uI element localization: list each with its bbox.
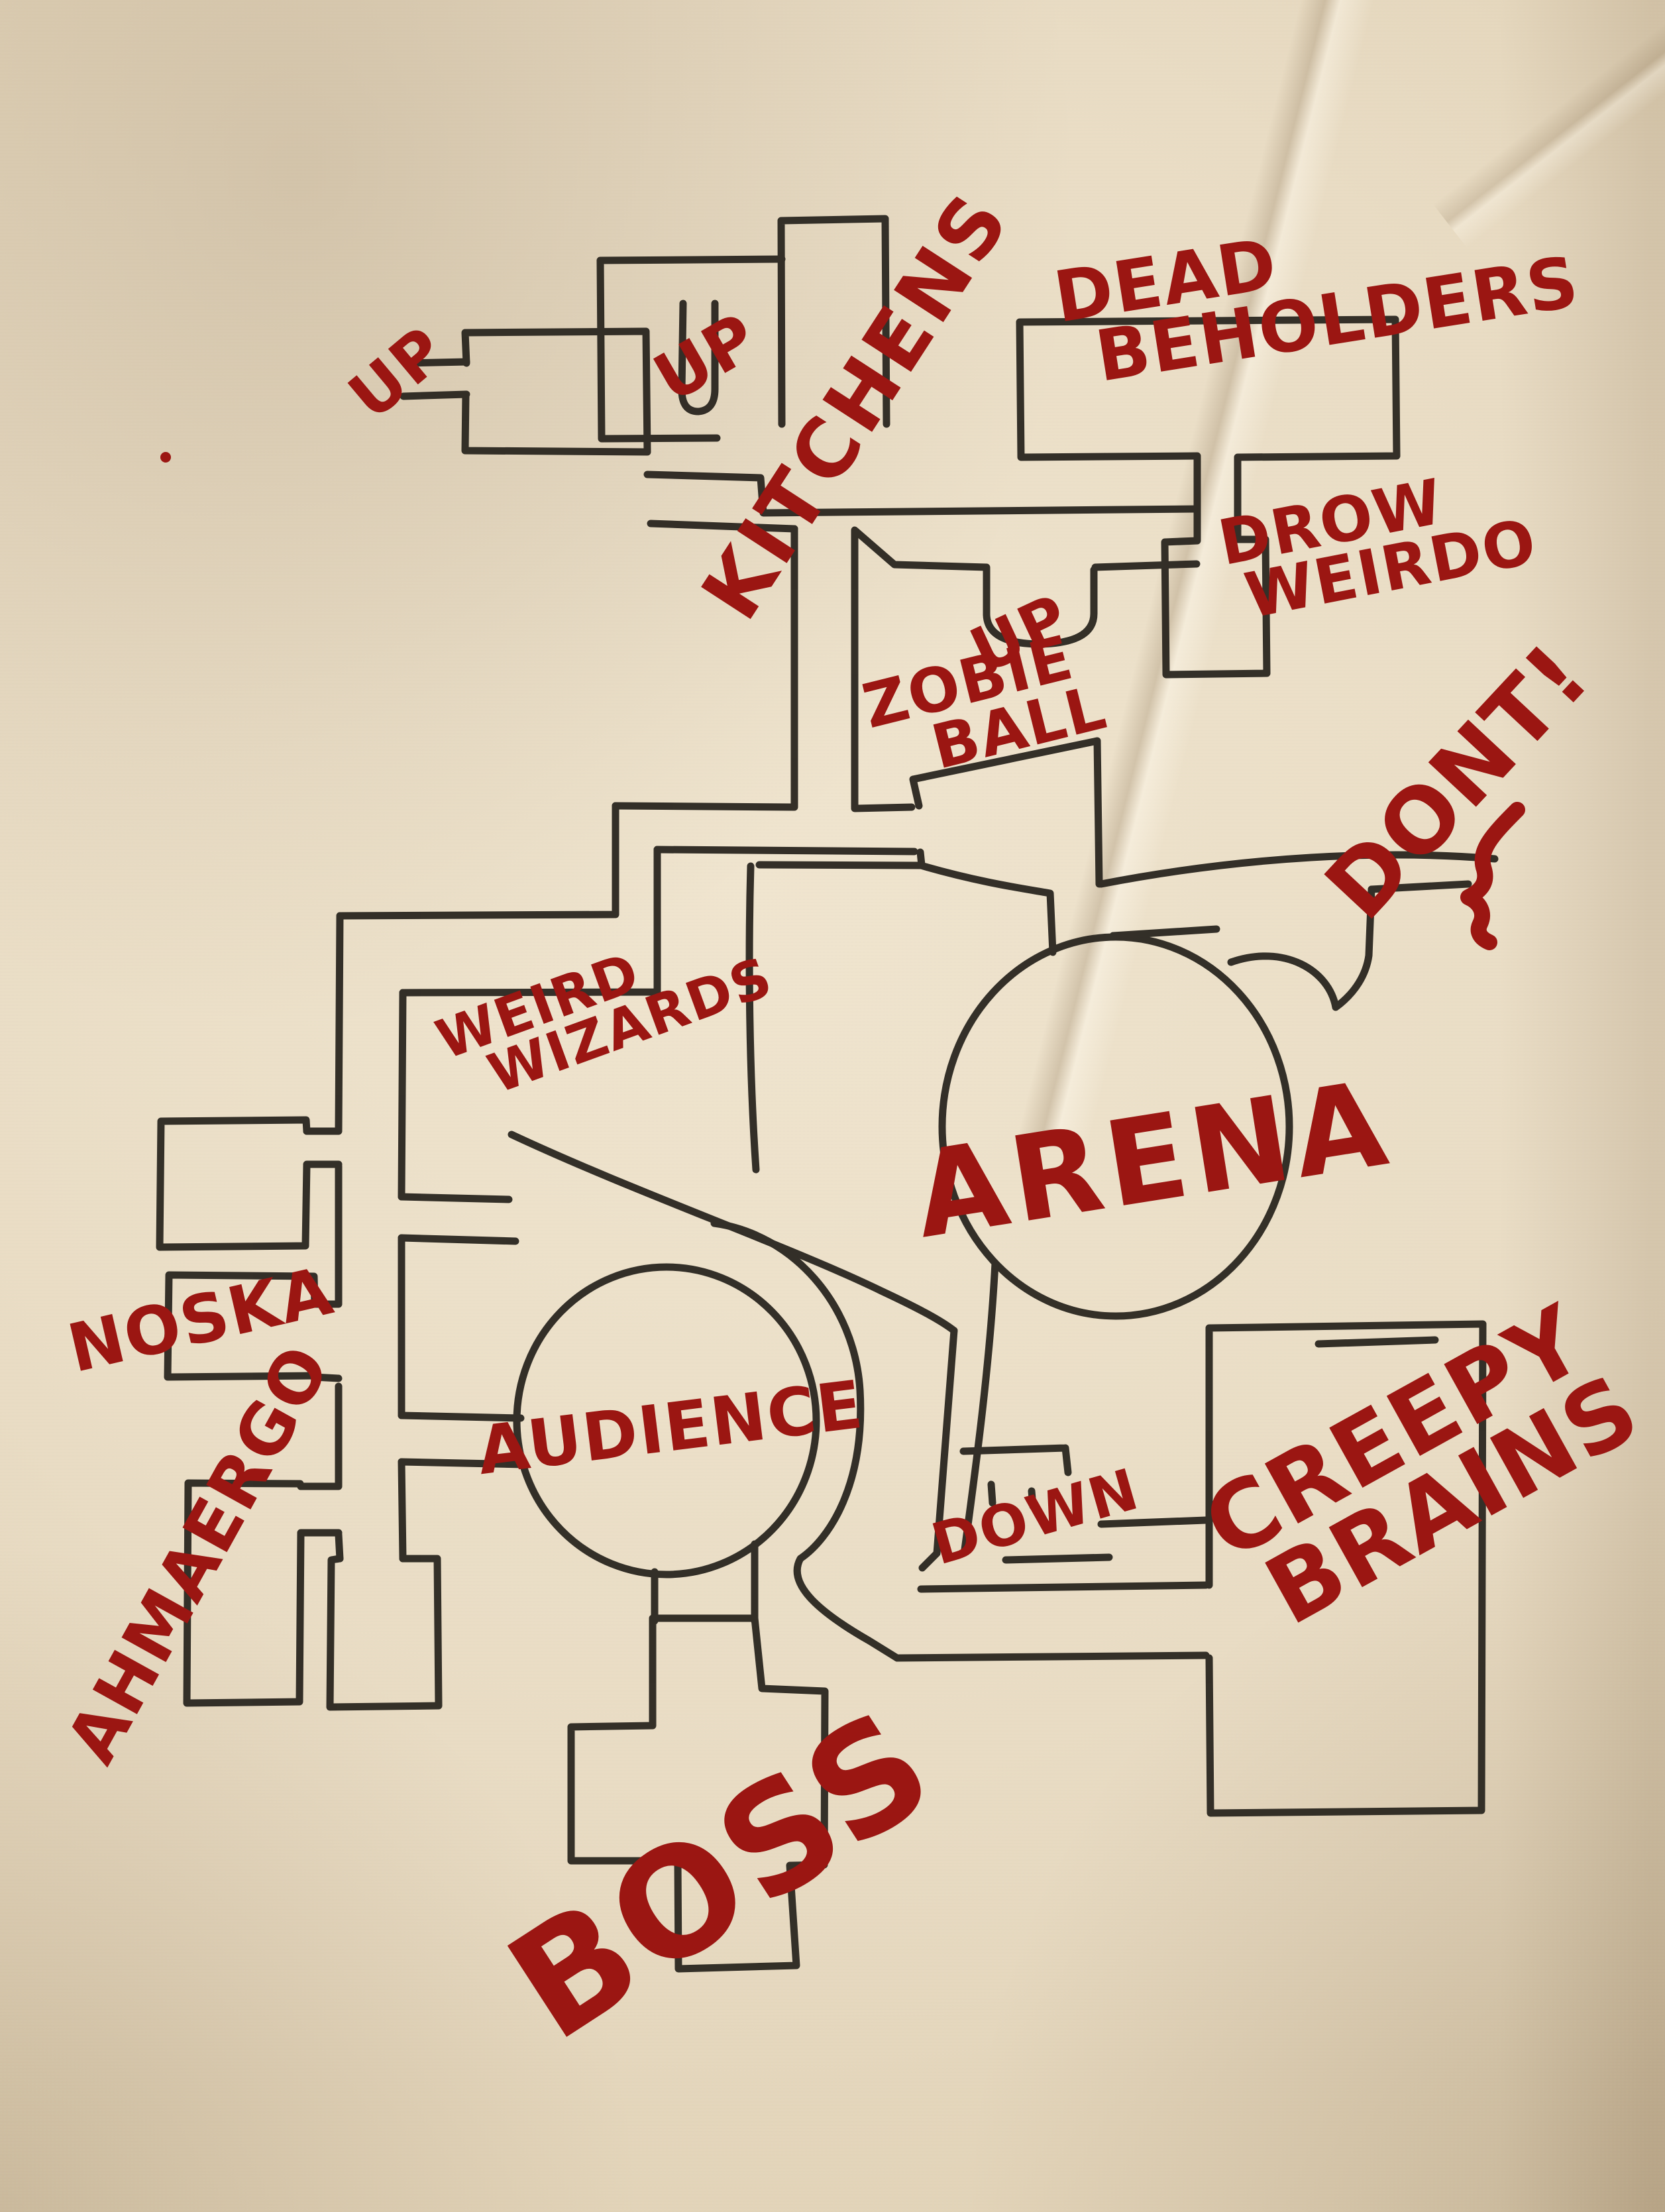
left-corridor-foot-room xyxy=(330,1559,439,1707)
ring-top-bar xyxy=(759,865,1053,952)
room-upper-left xyxy=(465,331,647,452)
stray-ink-dot xyxy=(160,452,171,463)
room-west-3-door xyxy=(301,1486,339,1533)
ring-left-vertical xyxy=(749,866,756,1170)
room-west-1-door xyxy=(307,1131,339,1164)
left-corridor-walls xyxy=(339,916,403,1559)
south-corridor xyxy=(897,1585,1206,1658)
creepy-brains-top-passage xyxy=(1318,1340,1435,1344)
room-west-1 xyxy=(160,1120,307,1247)
audience-west-connector-upper xyxy=(402,1197,515,1241)
kitchens-hall-top-wall xyxy=(647,474,1197,513)
map-page: UP UP KITCHENS DEAD BEHOLDERS DROW WEIRD… xyxy=(0,0,1665,2212)
cross-corridor xyxy=(616,806,914,852)
